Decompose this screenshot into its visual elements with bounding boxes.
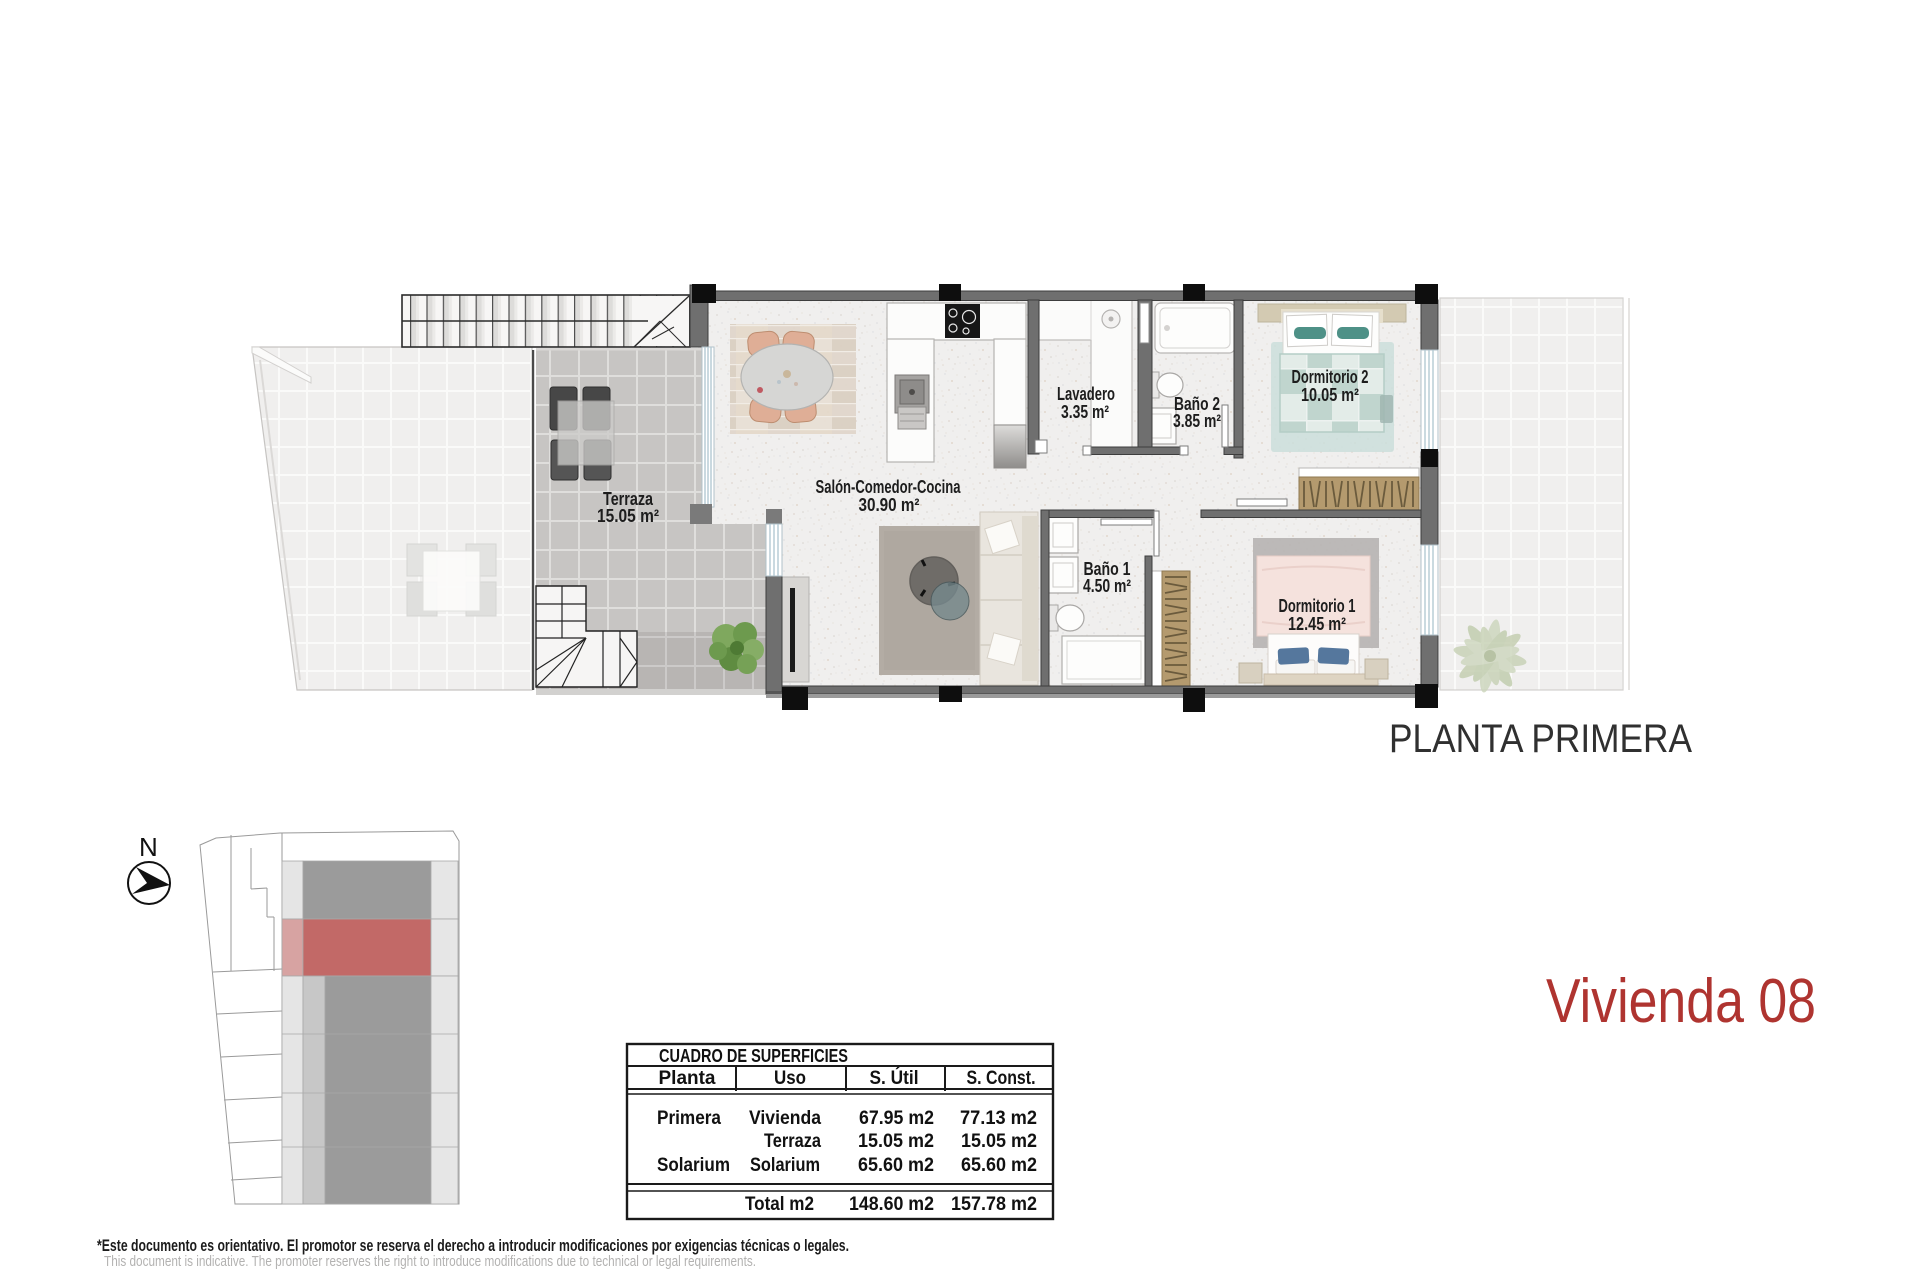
svg-text:65.60 m2: 65.60 m2	[858, 1155, 934, 1176]
svg-text:Vivienda: Vivienda	[749, 1108, 821, 1129]
svg-text:S. Const.: S. Const.	[967, 1068, 1036, 1089]
svg-text:12.45 m²: 12.45 m²	[1288, 614, 1346, 634]
svg-text:Dormitorio 2: Dormitorio 2	[1292, 367, 1369, 387]
svg-text:15.05 m2: 15.05 m2	[961, 1131, 1037, 1152]
svg-text:Vivienda 08: Vivienda 08	[1546, 967, 1816, 1036]
svg-text:65.60 m2: 65.60 m2	[961, 1155, 1037, 1176]
svg-text:Uso: Uso	[774, 1068, 806, 1089]
svg-text:67.95 m2: 67.95 m2	[859, 1108, 934, 1129]
svg-text:3.85 m²: 3.85 m²	[1173, 411, 1221, 431]
svg-text:CUADRO DE SUPERFICIES: CUADRO DE SUPERFICIES	[659, 1046, 848, 1066]
svg-text:PLANTA PRIMERA: PLANTA PRIMERA	[1389, 717, 1692, 761]
svg-text:Lavadero: Lavadero	[1057, 384, 1115, 404]
svg-text:30.90 m²: 30.90 m²	[859, 495, 920, 515]
svg-text:Dormitorio 1: Dormitorio 1	[1279, 596, 1356, 616]
svg-text:Terraza: Terraza	[764, 1131, 821, 1152]
svg-text:N: N	[139, 832, 158, 862]
svg-text:15.05 m²: 15.05 m²	[597, 506, 659, 526]
svg-text:Planta: Planta	[659, 1068, 716, 1089]
svg-text:157.78 m2: 157.78 m2	[951, 1194, 1037, 1215]
svg-text:Salón-Comedor-Cocina: Salón-Comedor-Cocina	[816, 477, 962, 497]
svg-text:This document is indicative. T: This document is indicative. The promote…	[104, 1253, 756, 1270]
svg-text:Solarium: Solarium	[750, 1155, 820, 1176]
svg-text:10.05 m²: 10.05 m²	[1301, 385, 1359, 405]
svg-text:4.50 m²: 4.50 m²	[1083, 576, 1131, 596]
svg-text:148.60 m2: 148.60 m2	[849, 1194, 934, 1215]
svg-text:77.13 m2: 77.13 m2	[960, 1108, 1037, 1129]
svg-text:S. Útil: S. Útil	[870, 1067, 919, 1089]
svg-text:15.05 m2: 15.05 m2	[858, 1131, 934, 1152]
svg-text:3.35 m²: 3.35 m²	[1061, 402, 1109, 422]
svg-text:Solarium: Solarium	[657, 1155, 730, 1176]
svg-text:Total m2: Total m2	[745, 1194, 814, 1215]
svg-text:Primera: Primera	[657, 1108, 721, 1129]
